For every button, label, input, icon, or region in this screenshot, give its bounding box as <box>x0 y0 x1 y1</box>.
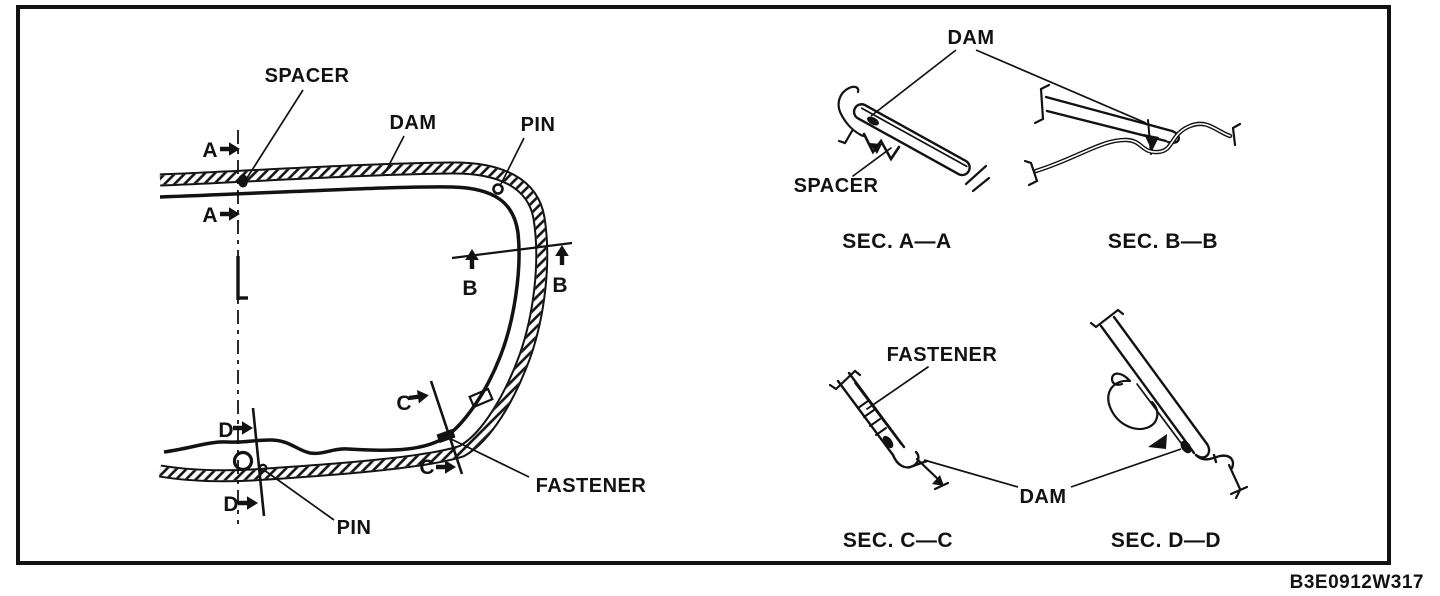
section-view-cc <box>830 367 948 489</box>
arrow-a-bottom <box>220 207 240 221</box>
caption-sec-cc: SEC. C—C <box>843 529 953 552</box>
pin-top-circle <box>494 185 503 194</box>
section-view-dd <box>1091 310 1247 498</box>
arrow-b-right <box>555 245 569 265</box>
figure-code: B3E0912W317 <box>1290 572 1424 593</box>
section-line-a <box>238 130 248 524</box>
arrow-d-top <box>233 421 253 435</box>
grommet-circle <box>235 453 252 470</box>
labels: SPACER DAM PIN PIN FASTENER A A B B C C … <box>202 27 1424 593</box>
bb-body-break-left <box>1025 161 1037 185</box>
marker-b-right: B <box>552 274 567 297</box>
bb-body-panel-inner <box>1036 124 1230 171</box>
cc-leg-arrow <box>932 475 944 486</box>
bb-body-panel <box>1036 124 1230 171</box>
marker-a-top: A <box>202 139 217 162</box>
arrow-b-left <box>465 249 479 269</box>
dd-leg <box>1229 465 1240 489</box>
dam-leader-to-aa <box>871 50 956 116</box>
spacer-right-label: SPACER <box>794 175 879 197</box>
marker-b-left: B <box>462 277 477 300</box>
dam-leader-to-dd <box>1071 449 1181 487</box>
marker-a-bottom: A <box>202 204 217 227</box>
dam-bottom-leaders <box>924 449 1181 487</box>
dd-glass-inner <box>1137 384 1181 443</box>
fastener-right-label: FASTENER <box>887 344 998 366</box>
cc-fastener-leader <box>867 367 928 409</box>
section-arrows <box>220 142 569 510</box>
main-view <box>160 90 572 524</box>
caption-sec-aa: SEC. A—A <box>842 230 951 253</box>
dam-label: DAM <box>389 112 436 134</box>
fastener-mark <box>436 429 455 443</box>
bb-body-break-right <box>1233 124 1240 145</box>
pin-bottom-label: PIN <box>337 517 372 539</box>
dam-leader-to-bb <box>976 50 1146 123</box>
spacer-label: SPACER <box>265 65 350 87</box>
section-line-d <box>253 408 264 516</box>
fastener-label: FASTENER <box>536 475 647 497</box>
aa-glass-bar <box>851 102 972 178</box>
arrow-a-top <box>220 142 240 156</box>
spacer-leader <box>247 90 303 178</box>
bb-left-break <box>1035 85 1049 123</box>
spacer-mark <box>238 175 248 188</box>
figure-canvas: SPACER DAM PIN PIN FASTENER A A B B C C … <box>0 0 1440 596</box>
marker-c-top: C <box>396 392 411 415</box>
fastener-leader <box>451 439 529 477</box>
marker-d-bottom: D <box>223 493 238 516</box>
main-view-leaders <box>247 90 529 520</box>
caption-sec-dd: SEC. D—D <box>1111 529 1221 552</box>
pin-top-label: PIN <box>521 114 556 136</box>
caption-sec-bb: SEC. B—B <box>1108 230 1218 253</box>
dd-glass-bottom <box>1101 326 1194 453</box>
marker-c-bottom: C <box>419 456 434 479</box>
marker-d-top: D <box>218 419 233 442</box>
arrow-d-bottom <box>238 496 258 510</box>
dd-clip-arrow <box>1148 434 1167 449</box>
dam-bottom-label: DAM <box>1019 486 1066 508</box>
section-view-bb <box>1025 85 1240 185</box>
dam-top-label: DAM <box>947 27 994 49</box>
manual-page: SPACER DAM PIN PIN FASTENER A A B B C C … <box>0 0 1440 596</box>
